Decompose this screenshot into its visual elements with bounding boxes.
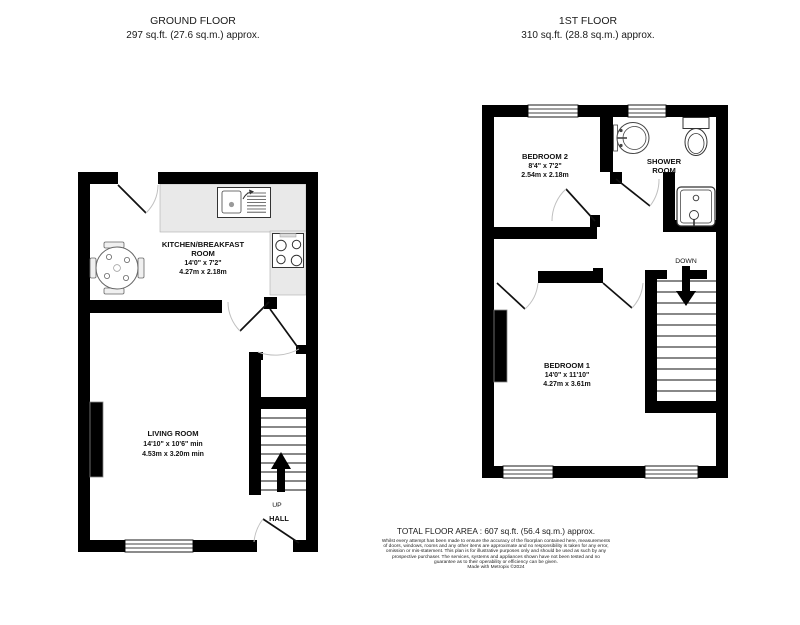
footer: TOTAL FLOOR AREA : 607 sq.ft. (56.4 sq.m… (381, 526, 611, 571)
stairs-down-icon (657, 266, 716, 391)
ground-floor-plan: KITCHEN/BREAKFAST ROOM 14'0" x 7'2" 4.27… (78, 172, 318, 552)
total-floor-area: TOTAL FLOOR AREA : 607 sq.ft. (56.4 sq.m… (381, 526, 611, 536)
cupboard-door (258, 309, 299, 355)
wash-basin-icon (614, 123, 650, 154)
first-floor-plan: BEDROOM 2 8'4" x 7'2" 2.54m x 2.18m SHOW… (482, 105, 728, 478)
bedroom1-window-right (645, 466, 698, 478)
bedroom1-door-left (497, 283, 538, 309)
bedroom1-door-right (603, 283, 643, 308)
living-room-label: LIVING ROOM (147, 429, 198, 438)
kitchen-living-door (228, 302, 269, 331)
kitchen-dims-metric: 4.27m x 2.18m (179, 269, 226, 276)
kitchen-label: KITCHEN/BREAKFAST (162, 240, 245, 249)
living-room-window (125, 540, 193, 552)
shower-tray-icon (677, 187, 715, 226)
shower-room-door (616, 179, 659, 206)
living-room-dims-imperial: 14'10" x 10'6" min (143, 441, 202, 448)
bedroom1-window-left (503, 466, 553, 478)
kitchen-dims-imperial: 14'0" x 7'2" (184, 260, 221, 267)
floorplan-page: GROUND FLOOR 297 sq.ft. (27.6 sq.m.) app… (0, 0, 800, 625)
stairs-up-icon (261, 418, 306, 492)
kitchen-sink-icon (218, 188, 271, 218)
shower-room-window (628, 105, 666, 117)
hall-label: HALL (269, 514, 289, 523)
stairs-up-label: UP (272, 502, 282, 509)
bedroom1-dims-imperial: 14'0" x 11'10" (545, 372, 590, 379)
disclaimer-text: Whilst every attempt has been made to en… (381, 539, 611, 565)
shower-room-label-2: ROOM (652, 166, 676, 175)
shower-room-label: SHOWER (647, 157, 682, 166)
chimney-breast-first (494, 310, 507, 382)
bedroom2-dims-metric: 2.54m x 2.18m (521, 172, 568, 179)
back-door (118, 185, 158, 213)
living-room-dims-metric: 4.53m x 3.20m min (142, 451, 204, 458)
bedroom2-door (552, 189, 595, 221)
kitchen-label-2: ROOM (191, 249, 215, 258)
chimney-breast-ground (90, 402, 103, 477)
dining-table-icon (90, 242, 144, 294)
bedroom1-label: BEDROOM 1 (544, 361, 591, 370)
bedroom2-dims-imperial: 8'4" x 7'2" (528, 163, 561, 170)
hob-icon (273, 234, 304, 268)
bedroom2-label: BEDROOM 2 (522, 152, 568, 161)
bedroom2-window (528, 105, 578, 117)
toilet-icon (683, 118, 709, 156)
metropix-credit: Made with Metropix ©2024 (381, 565, 611, 571)
bedroom1-dims-metric: 4.27m x 3.61m (543, 381, 590, 388)
stairs-down-label: DOWN (675, 258, 697, 265)
